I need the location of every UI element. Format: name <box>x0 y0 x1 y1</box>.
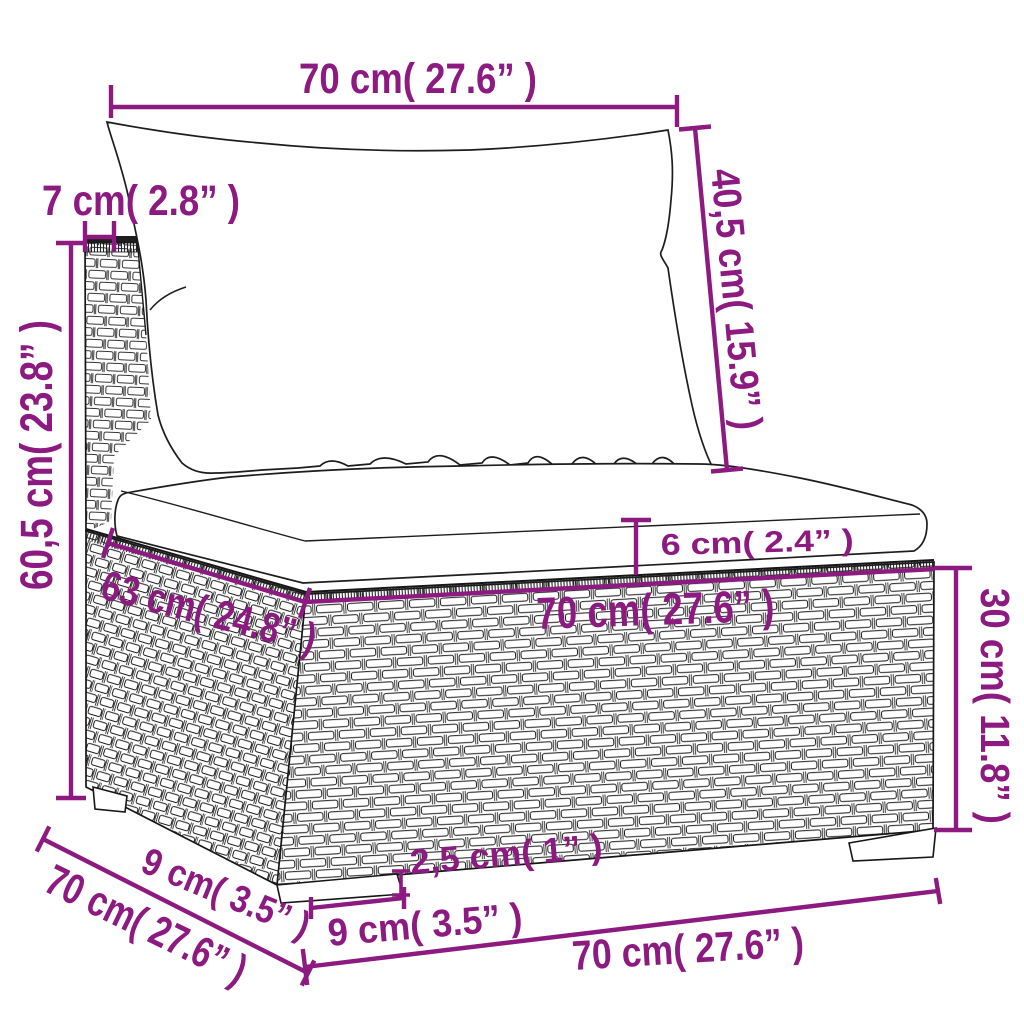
svg-text:6 cm( 2.4” ): 6 cm( 2.4” ) <box>660 524 854 562</box>
svg-text:30 cm( 11.8” ): 30 cm( 11.8” ) <box>972 588 1018 824</box>
svg-text:70 cm( 27.6” ): 70 cm( 27.6” ) <box>536 580 776 639</box>
svg-text:7 cm( 2.8” ): 7 cm( 2.8” ) <box>42 177 240 225</box>
svg-text:70 cm( 27.6” ): 70 cm( 27.6” ) <box>299 55 537 103</box>
svg-text:60,5 cm( 23.8” ): 60,5 cm( 23.8” ) <box>11 320 62 590</box>
